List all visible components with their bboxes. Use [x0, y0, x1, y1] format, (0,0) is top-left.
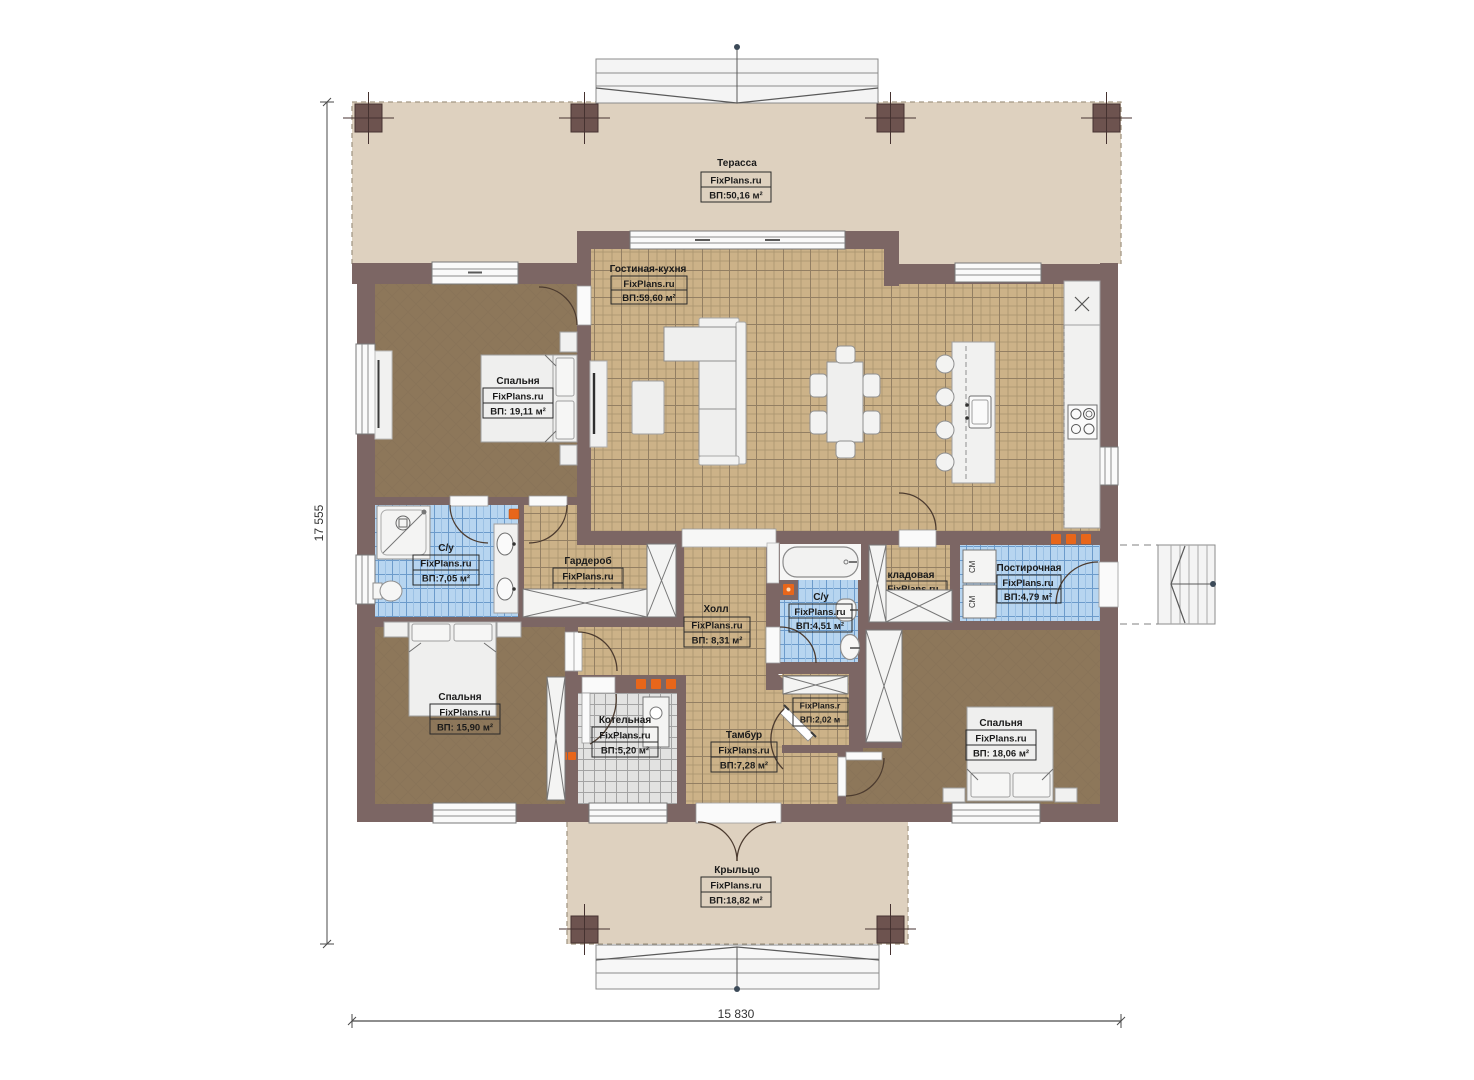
svg-text:ВП: 15,90 м²: ВП: 15,90 м²	[437, 723, 493, 734]
svg-text:FixPlans.ru: FixPlans.ru	[975, 734, 1026, 745]
svg-text:СМ: СМ	[968, 595, 977, 608]
svg-text:ВП:7,05 м²: ВП:7,05 м²	[422, 574, 470, 585]
svg-text:С/у: С/у	[438, 543, 454, 554]
svg-text:С/у: С/у	[813, 592, 829, 603]
svg-text:Гардероб: Гардероб	[564, 555, 611, 567]
svg-text:17 555: 17 555	[312, 504, 326, 541]
svg-text:FixPlans.ru: FixPlans.ru	[718, 746, 769, 757]
svg-text:Холл: Холл	[703, 604, 728, 615]
svg-text:ВП:2,02 м: ВП:2,02 м	[800, 715, 840, 725]
svg-text:СМ: СМ	[968, 560, 977, 573]
svg-text:ВП:50,16 м²: ВП:50,16 м²	[709, 191, 762, 202]
svg-text:FixPlans.ru: FixPlans.ru	[599, 731, 650, 742]
svg-text:ВП: 19,11 м²: ВП: 19,11 м²	[490, 407, 546, 418]
svg-text:Спальня: Спальня	[438, 692, 481, 703]
svg-text:15 830: 15 830	[718, 1007, 755, 1021]
svg-text:FixPlans.ru: FixPlans.ru	[439, 708, 490, 719]
svg-text:кладовая: кладовая	[888, 570, 935, 581]
svg-text:Гостиная-кухня: Гостиная-кухня	[610, 264, 687, 275]
svg-text:Постирочная: Постирочная	[997, 563, 1062, 574]
svg-text:ВП:59,60 м²: ВП:59,60 м²	[622, 293, 675, 304]
svg-text:FixPlans.ru: FixPlans.ru	[623, 279, 674, 290]
svg-text:FixPlans.ru: FixPlans.ru	[710, 176, 761, 187]
svg-text:FixPlans.ru: FixPlans.ru	[420, 559, 471, 570]
svg-text:FixPlans.ru: FixPlans.ru	[691, 621, 742, 632]
svg-text:FixPlans.ru: FixPlans.ru	[492, 392, 543, 403]
svg-text:Терасса: Терасса	[717, 158, 757, 169]
svg-text:Крыльцо: Крыльцо	[714, 865, 760, 876]
svg-text:ВП:18,82 м²: ВП:18,82 м²	[709, 896, 762, 907]
svg-text:Спальня: Спальня	[496, 376, 539, 387]
svg-text:ВП:5,20 м²: ВП:5,20 м²	[601, 746, 649, 757]
svg-text:ВП: 8,31 м²: ВП: 8,31 м²	[692, 636, 743, 647]
svg-text:FixPlans.ru: FixPlans.ru	[794, 607, 845, 618]
svg-text:ВП:4,51 м²: ВП:4,51 м²	[796, 621, 844, 632]
svg-text:FixPlans.r: FixPlans.r	[800, 701, 841, 711]
svg-text:Котельная: Котельная	[599, 715, 652, 726]
svg-text:ВП:4,79 м²: ВП:4,79 м²	[1004, 592, 1052, 603]
svg-text:Тамбур: Тамбур	[726, 729, 762, 741]
svg-text:Спальня: Спальня	[979, 718, 1022, 729]
svg-text:ВП: 18,06 м²: ВП: 18,06 м²	[973, 749, 1029, 760]
svg-text:FixPlans.ru: FixPlans.ru	[562, 572, 613, 583]
svg-text:FixPlans.ru: FixPlans.ru	[1002, 578, 1053, 589]
svg-text:FixPlans.ru: FixPlans.ru	[710, 881, 761, 892]
svg-text:ВП:7,28 м²: ВП:7,28 м²	[720, 761, 768, 772]
